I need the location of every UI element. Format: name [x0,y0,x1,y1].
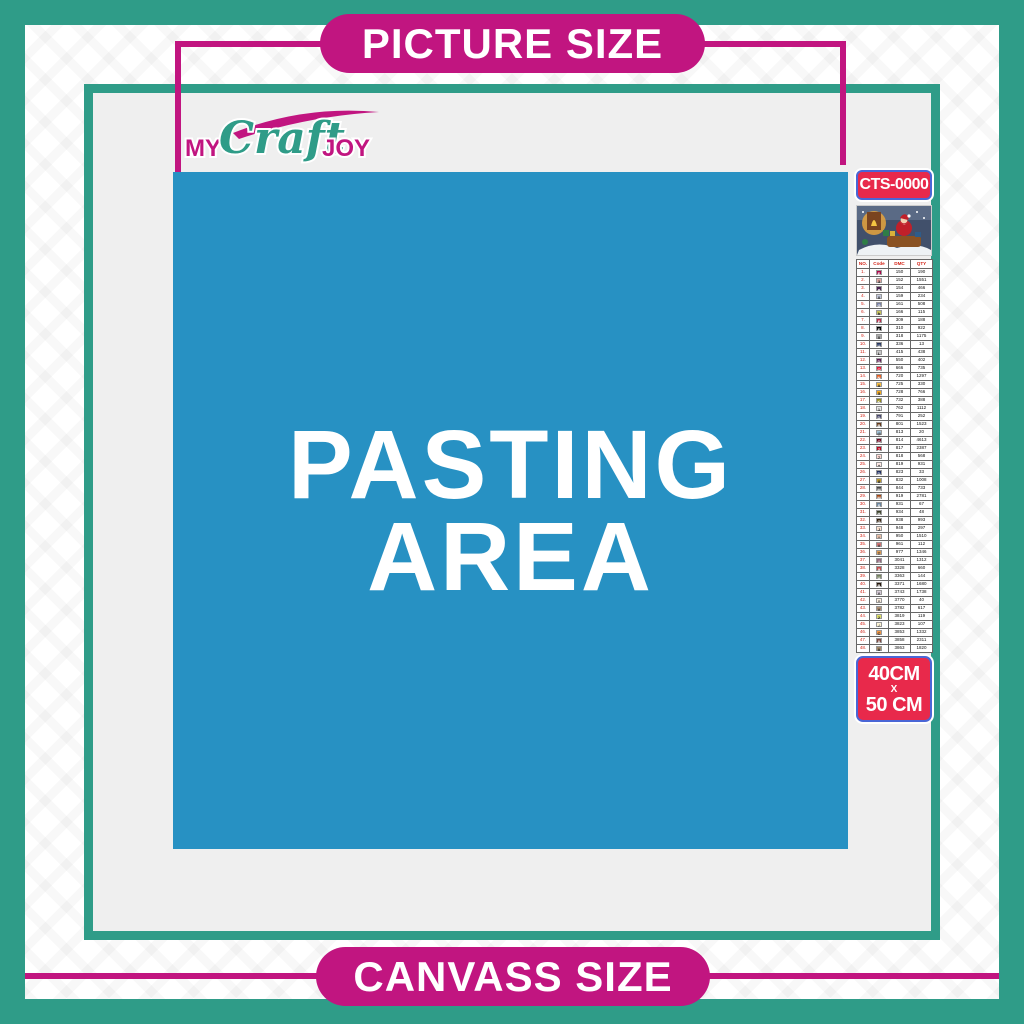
size-width: 40CM [868,664,919,684]
dmc-value: 318 [889,333,911,341]
color-row: 17. K 732 388 [857,397,933,405]
code-chip: * [876,534,882,540]
code-cell: N [870,373,889,381]
color-row: 18. 1 762 1112 [857,405,933,413]
row-number: 37. [857,557,870,565]
dmc-value: 819 [889,461,911,469]
qty-value: 1175 [911,333,933,341]
qty-value: 1523 [911,421,933,429]
qty-value: 234 [911,293,933,301]
code-chip: h [876,310,882,316]
color-row: 39. U 3363 144 [857,573,933,581]
code-chip: Z [876,446,882,452]
code-cell: ^ [870,597,889,605]
row-number: 15. [857,381,870,389]
header-qty: QTY [911,260,933,269]
code-chip: # [876,542,882,548]
code-cell: D [870,357,889,365]
row-number: 29. [857,493,870,501]
code-chip: M [876,486,882,492]
color-row: 24. 7 818 568 [857,453,933,461]
row-number: 22. [857,437,870,445]
dmc-value: 166 [889,309,911,317]
qty-value: 20 [911,429,933,437]
dmc-value: 3823 [889,621,911,629]
qty-value: 1680 [911,581,933,589]
qty-value: 1297 [911,373,933,381]
code-cell: 2 [870,613,889,621]
code-chip: / [876,622,882,628]
qty-value: 252 [911,413,933,421]
qty-value: 766 [911,389,933,397]
code-chip: 1 [876,406,882,412]
code-cell: S [870,501,889,509]
dmc-value: 977 [889,549,911,557]
row-number: 47. [857,637,870,645]
code-cell: E [870,269,889,277]
qty-value: 438 [911,349,933,357]
code-chip: O [876,438,882,444]
dmc-value: 938 [889,517,911,525]
code-cell: / [870,621,889,629]
code-chip: E [876,326,882,332]
code-chip: G [876,518,882,524]
code-chip: S [876,502,882,508]
row-number: 34. [857,533,870,541]
row-number: 14. [857,373,870,381]
code-cell: Z [870,445,889,453]
code-cell: U [870,573,889,581]
qty-value: 112 [911,541,933,549]
code-cell: X [870,333,889,341]
row-number: 35. [857,541,870,549]
pasting-area: PASTING AREA [173,172,848,849]
code-chip: @ [876,430,882,436]
dmc-value: 931 [889,501,911,509]
row-number: 4. [857,293,870,301]
dmc-value: 728 [889,389,911,397]
code-chip: U [876,342,882,348]
dmc-value: 161 [889,301,911,309]
row-number: 30. [857,501,870,509]
dmc-value: 801 [889,421,911,429]
code-chip: N [876,374,882,380]
qty-value: 2781 [911,493,933,501]
color-row: 27. 8 832 1008 [857,477,933,485]
row-number: 20. [857,421,870,429]
code-chip: + [876,462,882,468]
dmc-value: 732 [889,397,911,405]
row-number: 10. [857,341,870,349]
code-cell: 0 [870,637,889,645]
dmc-value: 948 [889,525,911,533]
code-chip: G [876,302,882,308]
code-chip: I [876,558,882,564]
row-number: 13. [857,365,870,373]
color-row: 22. O 814 4613 [857,437,933,445]
code-cell: E [870,325,889,333]
row-number: 1. [857,269,870,277]
code-chip: D [876,358,882,364]
code-chip: A [876,646,882,652]
row-number: 45. [857,621,870,629]
row-number: 41. [857,589,870,597]
code-chip: X [876,334,882,340]
code-cell: * [870,533,889,541]
dmc-value: 3863 [889,645,911,653]
dmc-value: 159 [889,293,911,301]
color-row: 21. @ 813 20 [857,429,933,437]
qty-value: 1312 [911,557,933,565]
dmc-value: 720 [889,373,911,381]
qty-value: 107 [911,621,933,629]
dmc-value: 666 [889,365,911,373]
code-chip: 0 [876,638,882,644]
qty-value: 1346 [911,549,933,557]
code-cell: M [870,493,889,501]
color-row: 44. 2 3819 119 [857,613,933,621]
dmc-value: 150 [889,269,911,277]
qty-value: 13 [911,341,933,349]
row-number: 8. [857,325,870,333]
row-number: 6. [857,309,870,317]
code-cell: 9 [870,565,889,573]
row-number: 5. [857,301,870,309]
dmc-value: 919 [889,493,911,501]
code-cell: + [870,461,889,469]
code-cell: @ [870,429,889,437]
code-chip: J [876,526,882,532]
brand-logo: MY Craft JOY [183,99,388,171]
row-number: 19. [857,413,870,421]
code-chip: 8 [876,478,882,484]
code-chip: H [876,510,882,516]
bracket-right-line [840,41,846,165]
code-chip: L [876,350,882,356]
row-number: 33. [857,525,870,533]
qty-value: 2311 [911,637,933,645]
qty-value: 1112 [911,405,933,413]
product-thumbnail [857,206,931,255]
pasting-area-line2: AREA [367,511,654,602]
dmc-value: 152 [889,277,911,285]
color-row: 1. E 150 190 [857,269,933,277]
code-chip: O [876,366,882,372]
row-number: 44. [857,613,870,621]
color-row: 34. * 950 1510 [857,533,933,541]
dmc-value: 3770 [889,597,911,605]
dmc-value: 550 [889,357,911,365]
qty-value: 297 [911,525,933,533]
logo-word-my: MY [185,135,221,162]
code-cell: A [870,645,889,653]
dmc-value: 813 [889,429,911,437]
qty-value: 4613 [911,437,933,445]
row-number: 43. [857,605,870,613]
row-number: 32. [857,517,870,525]
code-cell: 1 [870,405,889,413]
dmc-value: 336 [889,341,911,349]
code-chip: C [876,630,882,636]
code-chip: E [876,270,882,276]
code-chip: M [876,494,882,500]
qty-value: 733 [911,485,933,493]
dmc-value: 3858 [889,637,911,645]
dmc-value: 309 [889,317,911,325]
color-row: 25. + 819 931 [857,461,933,469]
row-number: 39. [857,573,870,581]
color-row: 23. Z 817 2387 [857,445,933,453]
row-number: 31. [857,509,870,517]
row-number: 18. [857,405,870,413]
color-row: 41. Y 3743 1738 [857,589,933,597]
color-row: 10. U 336 13 [857,341,933,349]
table-header-row: NO. Code DMC QTY [857,260,933,269]
color-row: 26. D 823 33 [857,469,933,477]
dmc-value: 934 [889,509,911,517]
code-cell: 7 [870,453,889,461]
dmc-value: 791 [889,413,911,421]
row-number: 23. [857,445,870,453]
dmc-value: 818 [889,453,911,461]
canvass-size-banner: CANVASS SIZE [316,947,710,1006]
code-cell: M [870,485,889,493]
dmc-value: 3782 [889,605,911,613]
qty-value: 1738 [911,589,933,597]
qty-value: 1551 [911,277,933,285]
header-code: Code [870,260,889,269]
color-row: 7. F 309 188 [857,317,933,325]
bracket-left-line [175,41,181,172]
qty-value: 993 [911,517,933,525]
qty-value: 617 [911,605,933,613]
code-chip: B [876,582,882,588]
code-chip: V [876,606,882,612]
dmc-value: 3819 [889,613,911,621]
code-cell: X [870,293,889,301]
code-chip: U [876,574,882,580]
qty-value: 508 [911,301,933,309]
code-cell: Y [870,589,889,597]
code-cell: 3 [870,277,889,285]
dmc-value: 3363 [889,573,911,581]
row-number: 12. [857,357,870,365]
code-cell: B [870,421,889,429]
size-separator: X [891,684,898,695]
color-row: 38. 9 3328 660 [857,565,933,573]
dmc-value: 823 [889,469,911,477]
dmc-value: 762 [889,405,911,413]
qty-value: 931 [911,461,933,469]
qty-value: 119 [911,613,933,621]
code-cell: K [870,397,889,405]
color-row: 47. 0 3858 2311 [857,637,933,645]
row-number: 11. [857,349,870,357]
qty-value: 660 [911,565,933,573]
code-cell: U [870,341,889,349]
dmc-value: 3328 [889,565,911,573]
row-number: 40. [857,581,870,589]
picture-size-banner: PICTURE SIZE [320,14,705,73]
color-row: 15. A 725 330 [857,381,933,389]
picture-size-label: PICTURE SIZE [362,20,663,68]
code-chip: Y [876,590,882,596]
qty-value: 1820 [911,645,933,653]
dmc-value: 844 [889,485,911,493]
code-cell: C [870,629,889,637]
code-cell: D [870,469,889,477]
row-number: 2. [857,277,870,285]
row-number: 36. [857,549,870,557]
qty-value: 33 [911,469,933,477]
dmc-value: 154 [889,285,911,293]
row-number: 48. [857,645,870,653]
row-number: 16. [857,389,870,397]
dmc-value: 814 [889,437,911,445]
header-no: NO. [857,260,870,269]
color-row: 13. O 666 735 [857,365,933,373]
code-cell: 5 [870,389,889,397]
code-cell: O [870,365,889,373]
code-chip: B [876,422,882,428]
color-row: 31. H 934 48 [857,509,933,517]
color-row: 43. V 3782 617 [857,605,933,613]
sku-label: CTS-0000 [860,176,929,194]
qty-value: 40 [911,597,933,605]
color-row: 5. G 161 508 [857,301,933,309]
code-chip: D [876,470,882,476]
code-chip: A [876,382,882,388]
code-chip: ^ [876,598,882,604]
code-chip: 5 [876,390,882,396]
color-row: 11. L 415 438 [857,349,933,357]
dmc-value: 832 [889,477,911,485]
color-row: 9. X 318 1175 [857,333,933,341]
qty-value: 330 [911,381,933,389]
qty-value: 1332 [911,629,933,637]
color-row: 14. N 720 1297 [857,373,933,381]
color-row: 6. h 166 115 [857,309,933,317]
pasting-area-line1: PASTING [288,419,733,510]
code-cell: 8 [870,477,889,485]
color-row: 29. M 919 2781 [857,493,933,501]
dmc-value: 415 [889,349,911,357]
color-row: 40. B 3371 1680 [857,581,933,589]
code-chip: T [876,550,882,556]
row-number: 21. [857,429,870,437]
qty-value: 1008 [911,477,933,485]
qty-value: 402 [911,357,933,365]
size-height: 50 CM [866,695,922,715]
color-row: 37. I 3041 1312 [857,557,933,565]
code-cell: G [870,301,889,309]
code-cell: I [870,557,889,565]
qty-value: 188 [911,317,933,325]
color-row: 33. J 948 297 [857,525,933,533]
color-row: 16. 5 728 766 [857,389,933,397]
code-chip: 9 [876,566,882,572]
color-row: 4. X 159 234 [857,293,933,301]
qty-value: 388 [911,397,933,405]
dmc-value: 725 [889,381,911,389]
row-number: 28. [857,485,870,493]
color-row: 12. D 550 402 [857,357,933,365]
row-number: 38. [857,565,870,573]
code-cell: V [870,605,889,613]
sku-badge: CTS-0000 [856,170,932,200]
code-cell: D [870,413,889,421]
code-cell: J [870,525,889,533]
color-row: 19. D 791 252 [857,413,933,421]
code-cell: A [870,381,889,389]
color-row: 2. 3 152 1551 [857,277,933,285]
color-row: 45. / 3823 107 [857,621,933,629]
canvas-size-badge: 40CM X 50 CM [856,656,932,722]
qty-value: 48 [911,509,933,517]
row-number: 46. [857,629,870,637]
code-cell: O [870,437,889,445]
color-row: 32. G 938 993 [857,517,933,525]
dmc-value: 3041 [889,557,911,565]
row-number: 24. [857,453,870,461]
qty-value: 922 [911,325,933,333]
row-number: 27. [857,477,870,485]
color-row: 20. B 801 1523 [857,421,933,429]
row-number: 26. [857,469,870,477]
qty-value: 190 [911,269,933,277]
qty-value: 1510 [911,533,933,541]
dmc-value: 3853 [889,629,911,637]
code-chip: 7 [876,454,882,460]
code-cell: # [870,541,889,549]
qty-value: 115 [911,309,933,317]
color-row: 3. a 154 466 [857,285,933,293]
row-number: 17. [857,397,870,405]
dmc-value: 3743 [889,589,911,597]
color-row: 8. E 310 922 [857,325,933,333]
dmc-value: 950 [889,533,911,541]
code-chip: D [876,414,882,420]
canvass-size-label: CANVASS SIZE [353,953,672,1001]
code-cell: F [870,317,889,325]
code-chip: X [876,294,882,300]
row-number: 7. [857,317,870,325]
code-chip: K [876,398,882,404]
code-cell: H [870,509,889,517]
qty-value: 466 [911,285,933,293]
qty-value: 735 [911,365,933,373]
color-row: 30. S 931 67 [857,501,933,509]
dmc-value: 3371 [889,581,911,589]
code-chip: a [876,286,882,292]
dmc-value: 817 [889,445,911,453]
qty-value: 568 [911,453,933,461]
code-cell: L [870,349,889,357]
code-cell: B [870,581,889,589]
code-chip: 2 [876,614,882,620]
color-row: 48. A 3863 1820 [857,645,933,653]
color-row: 42. ^ 3770 40 [857,597,933,605]
code-chip: 3 [876,278,882,284]
poster-canvas: PICTURE SIZE CANVASS SIZE MY Craft JOY P… [0,0,1024,1024]
row-number: 42. [857,597,870,605]
row-number: 3. [857,285,870,293]
code-cell: G [870,517,889,525]
header-dmc: DMC [889,260,911,269]
dmc-value: 961 [889,541,911,549]
row-number: 9. [857,333,870,341]
code-cell: h [870,309,889,317]
